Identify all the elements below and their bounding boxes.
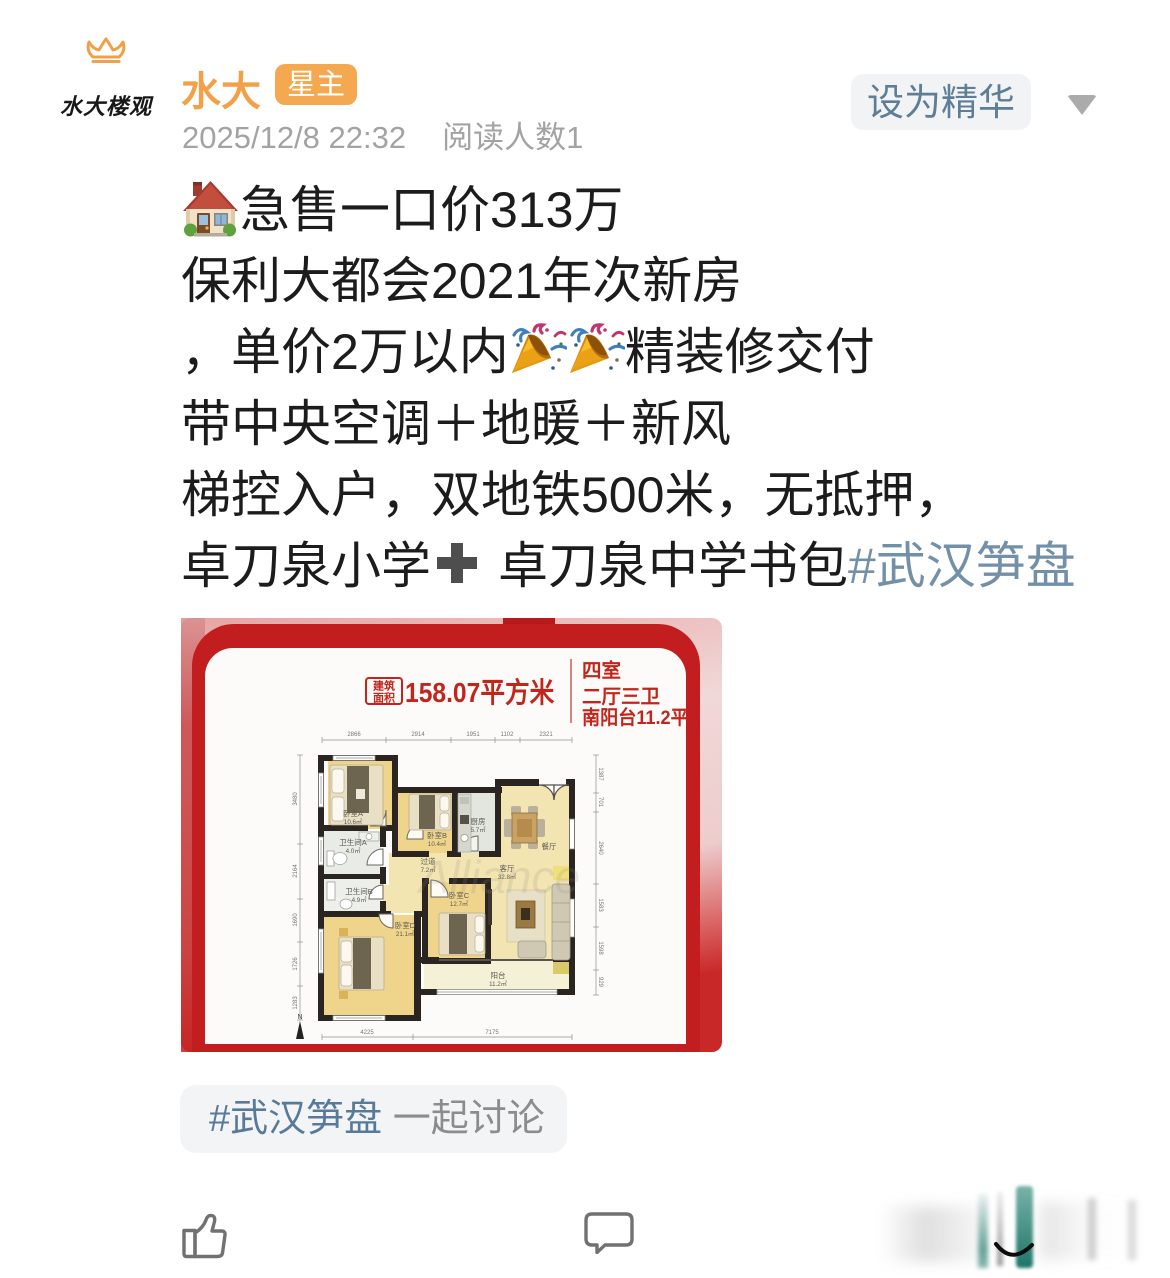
svg-text:7175: 7175	[485, 1030, 499, 1036]
svg-text:厨房: 厨房	[471, 816, 486, 826]
svg-text:4.0㎡: 4.0㎡	[346, 847, 362, 855]
svg-text:1598: 1598	[597, 941, 603, 955]
svg-text:3480: 3480	[293, 792, 299, 806]
svg-text:N: N	[297, 1014, 302, 1021]
svg-text:2321: 2321	[539, 732, 553, 738]
svg-text:2914: 2914	[411, 732, 425, 738]
svg-text:1726: 1726	[293, 957, 299, 971]
svg-text:2164: 2164	[293, 864, 299, 878]
svg-text:2640: 2640	[597, 841, 603, 855]
svg-text:1102: 1102	[501, 732, 515, 738]
svg-text:158.07平方米: 158.07平方米	[405, 677, 555, 709]
svg-text:1583: 1583	[597, 898, 603, 912]
svg-text:10.4㎡: 10.4㎡	[428, 840, 447, 848]
svg-text:1283: 1283	[293, 996, 299, 1010]
svg-text:南阳台11.2平: 南阳台11.2平	[582, 705, 689, 728]
svg-text:建筑: 建筑	[373, 679, 395, 693]
svg-text:4.9㎡: 4.9㎡	[352, 896, 368, 904]
svg-text:11.2㎡: 11.2㎡	[489, 980, 508, 988]
svg-text:1690: 1690	[293, 913, 299, 927]
svg-text:卧室B: 卧室B	[427, 830, 447, 840]
svg-text:929: 929	[597, 977, 603, 988]
svg-text:1387: 1387	[597, 767, 603, 781]
svg-text:21.1㎡: 21.1㎡	[396, 930, 415, 938]
svg-text:四室: 四室	[582, 659, 621, 682]
svg-text:1951: 1951	[466, 732, 480, 738]
svg-text:二厅三卫: 二厅三卫	[582, 686, 660, 708]
svg-text:2866: 2866	[347, 732, 361, 738]
svg-text:10.6㎡: 10.6㎡	[344, 818, 363, 826]
svg-text:卫生间A: 卫生间A	[339, 837, 367, 847]
svg-text:5.7㎡: 5.7㎡	[471, 826, 487, 834]
svg-text:餐厅: 餐厅	[542, 842, 557, 851]
svg-text:卧室A: 卧室A	[343, 808, 363, 818]
svg-text:卫生间B: 卫生间B	[345, 886, 373, 896]
svg-text:面积: 面积	[373, 691, 395, 705]
svg-text:Alliance: Alliance	[416, 851, 580, 903]
svg-text:卧室D: 卧室D	[395, 920, 416, 930]
svg-text:4225: 4225	[360, 1030, 374, 1036]
svg-text:阳台: 阳台	[491, 970, 506, 980]
svg-text:701: 701	[597, 797, 603, 808]
